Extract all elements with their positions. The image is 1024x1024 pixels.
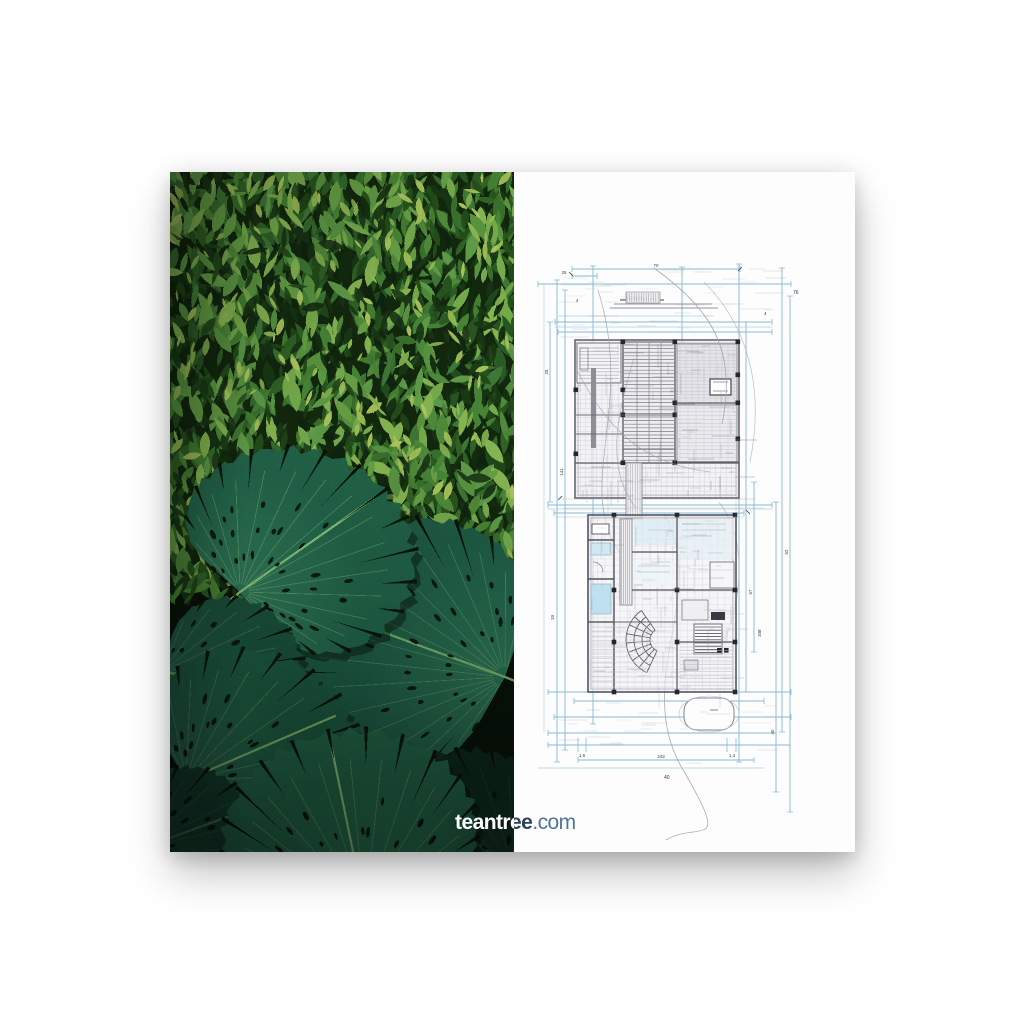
svg-text:141: 141 bbox=[559, 468, 564, 476]
svg-text:52: 52 bbox=[784, 549, 789, 554]
svg-text:25: 25 bbox=[544, 369, 549, 374]
svg-text:243: 243 bbox=[657, 754, 665, 759]
svg-text:25: 25 bbox=[562, 270, 567, 275]
svg-text:40: 40 bbox=[664, 775, 670, 781]
svg-text:70: 70 bbox=[654, 263, 659, 268]
svg-text:108: 108 bbox=[757, 629, 762, 637]
svg-text:57: 57 bbox=[748, 589, 753, 594]
svg-text:40: 40 bbox=[770, 729, 775, 734]
svg-text:1.4: 1.4 bbox=[729, 753, 736, 758]
svg-text:76: 76 bbox=[793, 290, 799, 296]
svg-text:19: 19 bbox=[550, 614, 555, 620]
svg-text:1.6: 1.6 bbox=[579, 753, 586, 758]
svg-text:4: 4 bbox=[764, 311, 767, 316]
